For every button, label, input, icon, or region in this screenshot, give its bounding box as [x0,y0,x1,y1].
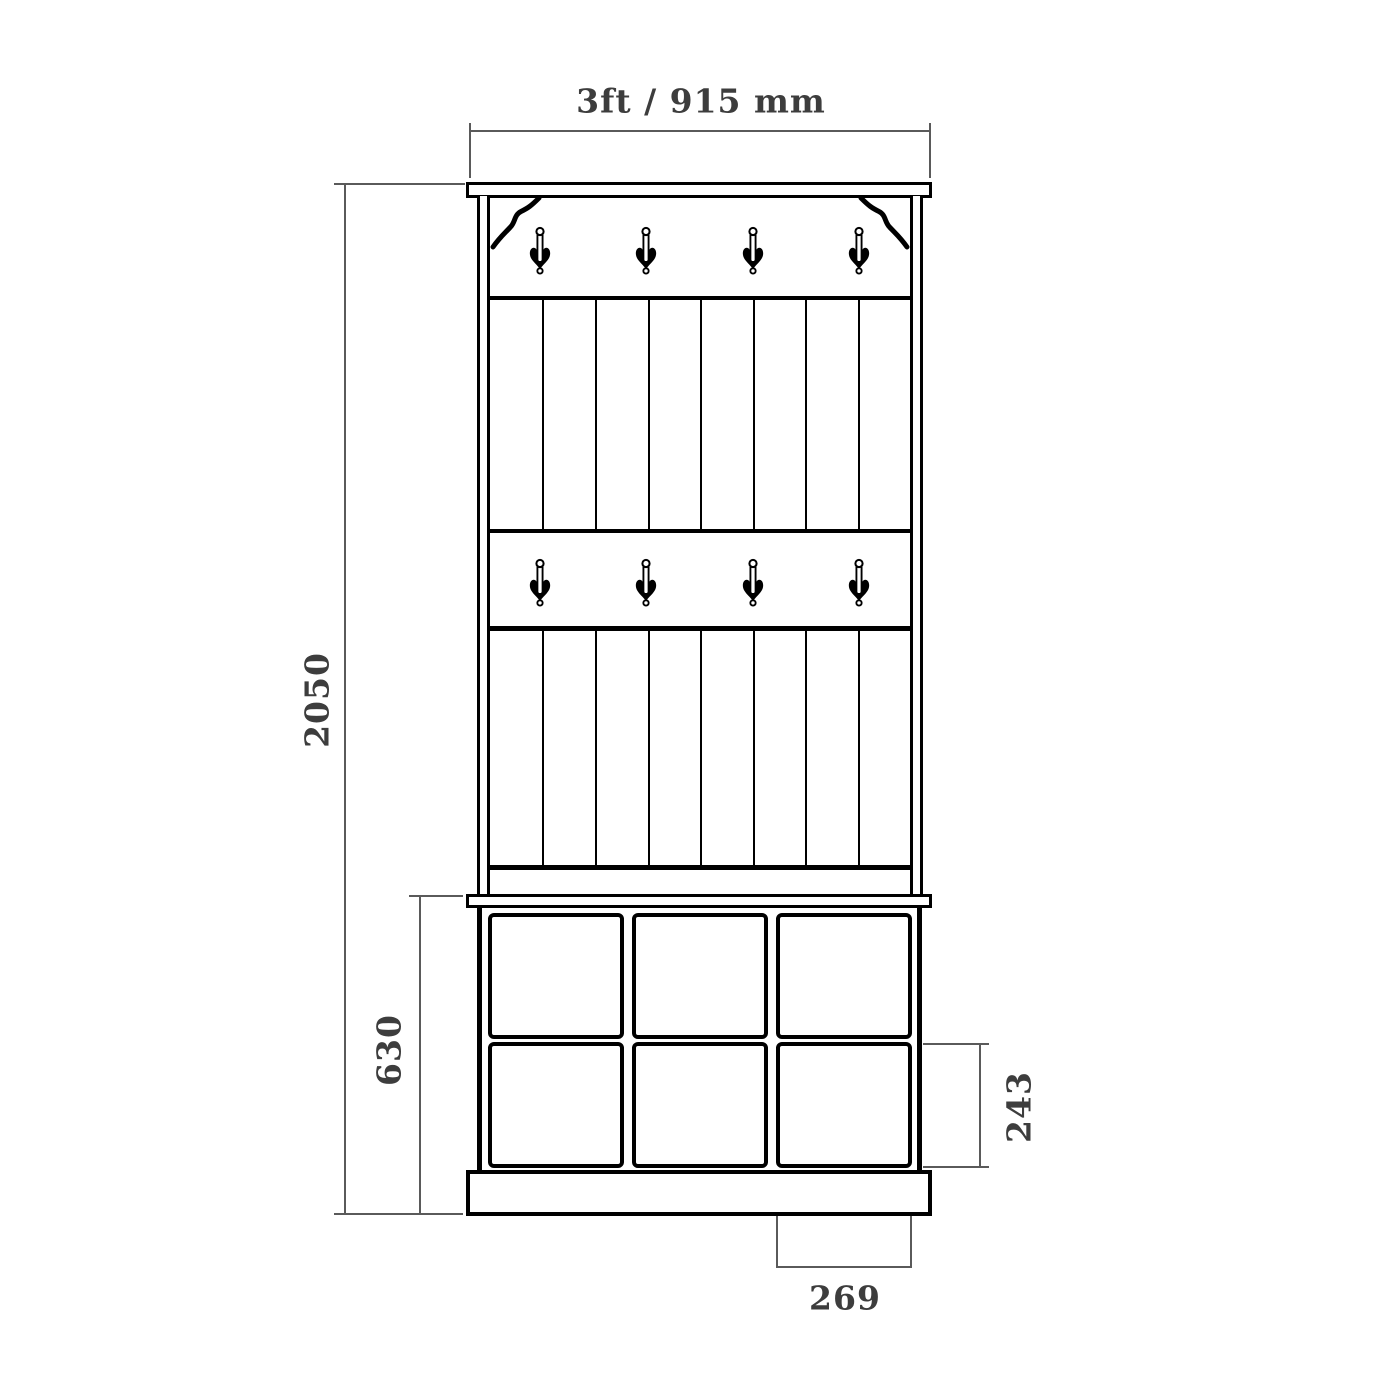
coat-hook-icon [525,226,555,276]
dimension-label-overall-width: 3ft / 915 mm [576,82,826,121]
dimension-label-overall-height: 2050 [298,652,337,748]
left-stile [477,196,490,897]
dimension-tick-overall-height-top [334,183,465,185]
panel-board-line [648,300,650,529]
dimension-tick-cubby-height-bottom [923,1166,989,1168]
right-stile [910,196,923,897]
panel-board-line [858,300,860,529]
panel-board-line [595,631,597,866]
dimension-line-overall-height [344,184,346,1215]
dimension-line-overall-width [470,130,930,132]
cubby-box [632,913,768,1039]
panel-board-line [542,631,544,866]
panel-board-line [805,631,807,866]
panel-board-line [542,300,544,529]
furniture-dimension-drawing: 3ft / 915 mm 2050 630 243 269 [0,0,1400,1400]
dimension-extension-width-left [469,123,471,178]
panel-board-line [700,631,702,866]
dimension-label-base-height: 630 [370,1014,409,1086]
panel-board-line [858,631,860,866]
coat-hook-icon [844,558,874,608]
panel-board-line [648,631,650,866]
cubby-box [488,1042,624,1168]
dimension-tick-bottom-shared [334,1213,463,1215]
dimension-label-cubby-height: 243 [1000,1071,1039,1143]
coat-hook-icon [631,558,661,608]
dimension-tick-cubby-height-top [923,1043,989,1045]
cubby-box [632,1042,768,1168]
coat-hook-icon [738,558,768,608]
dimension-extension-cubby-width-right [910,1216,912,1268]
panel-board-line [753,300,755,529]
panel-board-line [700,300,702,529]
dimension-tick-base-height-top [409,895,463,897]
dimension-extension-cubby-width-left [776,1216,778,1268]
middle-hook-rail-top-line [490,529,910,533]
coat-hook-icon [631,226,661,276]
dimension-extension-width-right [929,123,931,178]
dimension-line-base-height [419,896,421,1215]
cubby-side-right [917,906,922,1172]
coat-hook-icon [844,226,874,276]
panel-board-line [753,631,755,866]
cubby-box [776,1042,912,1168]
plinth-base [466,1170,932,1216]
bench-board [466,894,932,908]
dimension-label-cubby-width: 269 [809,1279,881,1318]
panel-board-line [805,300,807,529]
coat-hook-icon [738,226,768,276]
top-board [466,182,932,198]
cubby-box [488,913,624,1039]
panel-board-line [595,300,597,529]
dimension-line-cubby-height [979,1044,981,1168]
panel-bottom-rail-line [490,865,910,870]
cubby-side-left [477,906,482,1172]
dimension-line-cubby-width [777,1266,912,1268]
coat-hook-icon [525,558,555,608]
cubby-box [776,913,912,1039]
